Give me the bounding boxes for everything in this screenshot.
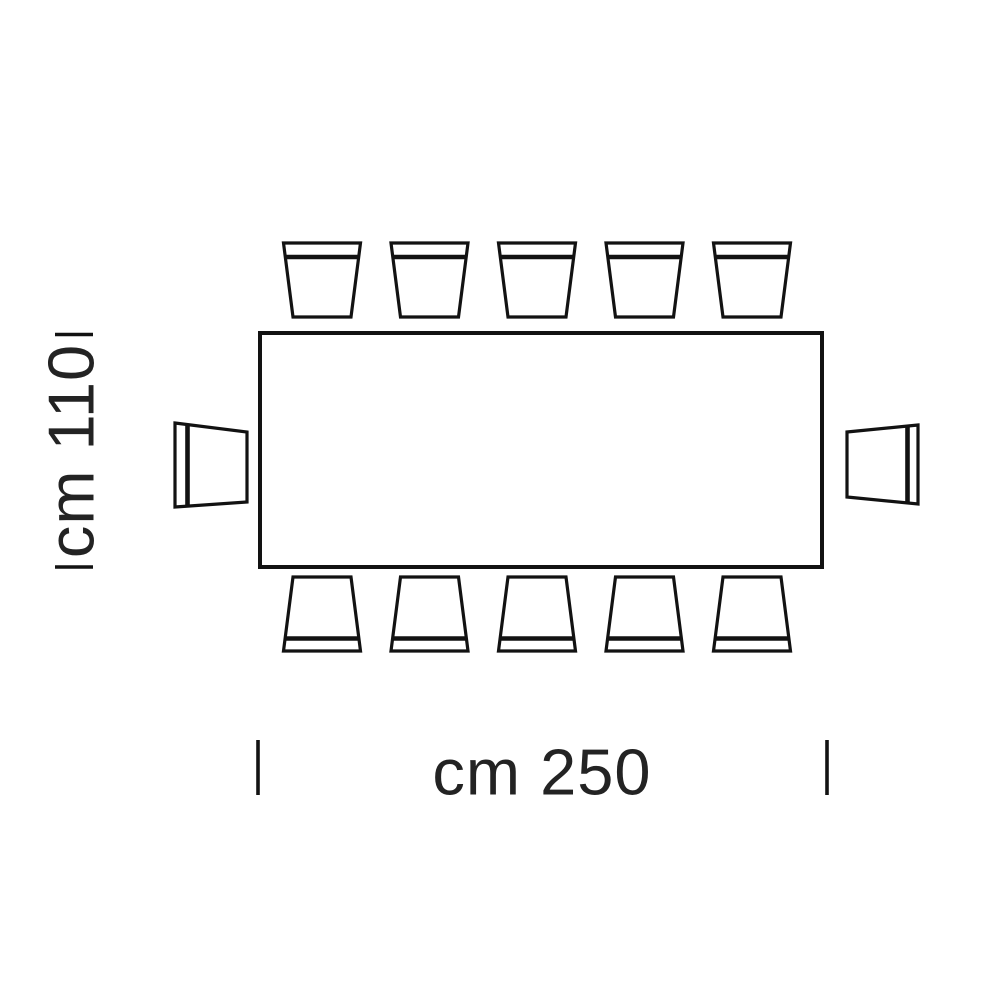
chair-top-5-outline [714,243,791,317]
chair-top-2-outline [391,243,468,317]
chair-top-4-outline [606,243,683,317]
chair-top-4 [606,243,683,317]
chair-left [175,423,247,507]
chairs-top-row [284,243,791,317]
chair-bottom-5 [714,577,791,651]
chairs-bottom-row [284,577,791,651]
depth-label: cm 110 [35,344,108,558]
width-label: cm 250 [432,736,651,809]
chair-bottom-3 [499,577,576,651]
chair-top-3-outline [499,243,576,317]
chair-top-1 [284,243,361,317]
chair-right-end [847,425,918,504]
chair-right [847,425,918,504]
chair-top-1-outline [284,243,361,317]
chair-bottom-2 [391,577,468,651]
chair-top-2 [391,243,468,317]
chair-top-3 [499,243,576,317]
table-top [260,333,822,567]
chair-bottom-1 [284,577,361,651]
chair-left-end [175,423,247,507]
width-dimension: cm 250 [258,736,827,809]
chair-top-5 [714,243,791,317]
table-dimension-diagram: cm 110 cm 250 [0,0,1000,1000]
chair-bottom-4 [606,577,683,651]
depth-dimension: cm 110 [35,335,108,568]
diagram-canvas: cm 110 cm 250 [0,0,1000,1000]
